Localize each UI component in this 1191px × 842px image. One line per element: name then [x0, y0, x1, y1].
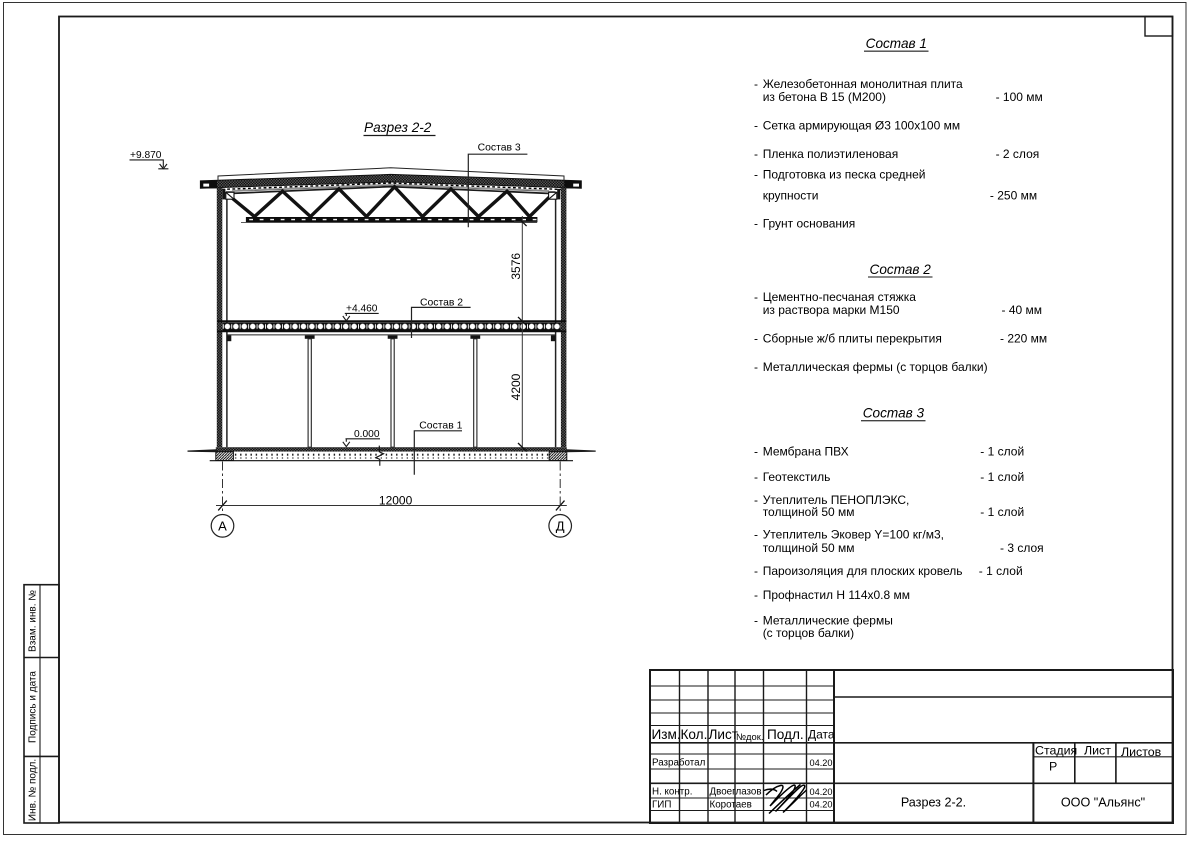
- svg-text:12000: 12000: [379, 493, 413, 507]
- svg-text:-: -: [754, 588, 758, 602]
- svg-text:Пленка полиэтиленовая: Пленка полиэтиленовая: [763, 147, 899, 161]
- svg-text:Кол.: Кол.: [681, 727, 708, 742]
- svg-text:-: -: [754, 528, 758, 542]
- svg-text:-: -: [754, 493, 758, 507]
- svg-text:Утеплитель Эковер Y=100 кг/м3,: Утеплитель Эковер Y=100 кг/м3,: [763, 528, 944, 542]
- svg-text:Мембрана ПВХ: Мембрана ПВХ: [763, 444, 849, 458]
- svg-text:Профнастил Н 114х0.8 мм: Профнастил Н 114х0.8 мм: [763, 588, 910, 602]
- svg-text:(с торцов балки): (с торцов балки): [763, 626, 854, 640]
- svg-text:Листов: Листов: [1121, 745, 1162, 759]
- svg-text:Лист: Лист: [1084, 744, 1111, 758]
- svg-text:04.20: 04.20: [810, 800, 833, 810]
- svg-text:- 1 слой: - 1 слой: [980, 505, 1024, 519]
- svg-text:Состав 1: Состав 1: [419, 420, 462, 431]
- svg-text:+4.460: +4.460: [346, 303, 378, 314]
- svg-text:Цементно-песчаная стяжка: Цементно-песчаная стяжка: [763, 290, 917, 304]
- svg-text:- 3 слоя: - 3 слоя: [1000, 541, 1044, 555]
- svg-text:+9.870: +9.870: [130, 150, 162, 161]
- svg-text:Состав 1: Состав 1: [866, 36, 927, 51]
- svg-text:-: -: [754, 77, 758, 91]
- svg-text:Инв. № подл.: Инв. № подл.: [28, 759, 39, 821]
- svg-text:- 220 мм: - 220 мм: [1000, 331, 1047, 345]
- svg-text:Взам. инв. №: Взам. инв. №: [28, 590, 39, 652]
- svg-text:крупности: крупности: [763, 189, 819, 203]
- svg-text:4200: 4200: [509, 373, 523, 400]
- svg-text:-: -: [754, 147, 758, 161]
- svg-text:Подл.: Подл.: [767, 727, 804, 742]
- svg-text:Железобетонная монолитная пли: Железобетонная монолитная плита: [763, 77, 963, 91]
- svg-text:Разрез 2-2: Разрез 2-2: [364, 120, 432, 135]
- svg-text:Пароизоляция для плоских крове: Пароизоляция для плоских кровель: [763, 564, 963, 578]
- svg-text:Дата: Дата: [808, 728, 835, 742]
- svg-text:- 250 мм: - 250 мм: [990, 189, 1037, 203]
- svg-text:из раствора марки М150: из раствора марки М150: [763, 303, 900, 317]
- svg-text:Сборные ж/б плиты перекрытия: Сборные ж/б плиты перекрытия: [763, 331, 942, 345]
- svg-text:Состав 2: Состав 2: [420, 297, 463, 308]
- svg-text:-: -: [754, 444, 758, 458]
- svg-text:толщиной 50 мм: толщиной 50 мм: [763, 541, 855, 555]
- svg-text:0.000: 0.000: [354, 429, 380, 440]
- svg-text:-: -: [754, 331, 758, 345]
- svg-text:Геотекстиль: Геотекстиль: [763, 470, 831, 484]
- svg-text:-: -: [754, 564, 758, 578]
- svg-text:Состав 2: Состав 2: [870, 262, 932, 277]
- svg-text:Подготовка из песка средней: Подготовка из песка средней: [763, 168, 926, 182]
- svg-text:- 1 слой: - 1 слой: [979, 564, 1023, 578]
- svg-text:А: А: [218, 519, 227, 534]
- svg-text:-: -: [754, 360, 758, 374]
- svg-text:Грунт основания: Грунт основания: [763, 217, 856, 231]
- svg-text:Стадия: Стадия: [1035, 744, 1077, 758]
- svg-text:04.20: 04.20: [810, 787, 833, 797]
- svg-text:04.20: 04.20: [810, 758, 833, 768]
- svg-text:-: -: [754, 119, 758, 133]
- svg-text:Разработал: Разработал: [652, 757, 706, 768]
- svg-text:Подпись и дата: Подпись и дата: [28, 671, 39, 743]
- svg-text:- 1 слой: - 1 слой: [980, 444, 1024, 458]
- svg-text:- 2 слоя: - 2 слоя: [996, 147, 1040, 161]
- svg-text:-: -: [754, 614, 758, 628]
- svg-text:Лист: Лист: [709, 727, 739, 742]
- svg-text:Изм.: Изм.: [652, 727, 681, 742]
- svg-text:Коротаев: Коротаев: [710, 799, 752, 810]
- svg-text:ГИП: ГИП: [652, 799, 671, 810]
- svg-text:3576: 3576: [509, 253, 523, 280]
- svg-text:- 1 слой: - 1 слой: [980, 470, 1024, 484]
- svg-text:Н. контр.: Н. контр.: [652, 787, 692, 798]
- svg-text:Разрез 2-2.: Разрез 2-2.: [901, 795, 966, 809]
- svg-text:№док.: №док.: [736, 731, 763, 742]
- svg-text:- 40 мм: - 40 мм: [1002, 303, 1043, 317]
- svg-text:ООО "Альянс": ООО "Альянс": [1061, 795, 1145, 809]
- svg-text:-: -: [754, 470, 758, 484]
- svg-text:Металлическая фермы (с торцов: Металлическая фермы (с торцов балки): [763, 360, 988, 374]
- svg-text:толщиной 50 мм: толщиной 50 мм: [763, 505, 855, 519]
- svg-text:-: -: [754, 168, 758, 182]
- svg-text:- 100 мм: - 100 мм: [996, 90, 1043, 104]
- svg-text:Сетка армирующая Ø3 100х100 мм: Сетка армирующая Ø3 100х100 мм: [763, 119, 960, 133]
- svg-text:-: -: [754, 290, 758, 304]
- svg-text:из бетона В 15 (М200): из бетона В 15 (М200): [763, 90, 886, 104]
- svg-text:Состав 3: Состав 3: [478, 143, 521, 154]
- svg-text:Состав 3: Состав 3: [863, 406, 925, 421]
- svg-text:Двоеглазов: Двоеглазов: [710, 787, 762, 798]
- svg-text:Д: Д: [556, 519, 565, 534]
- svg-text:Р: Р: [1049, 760, 1057, 774]
- svg-text:-: -: [754, 217, 758, 231]
